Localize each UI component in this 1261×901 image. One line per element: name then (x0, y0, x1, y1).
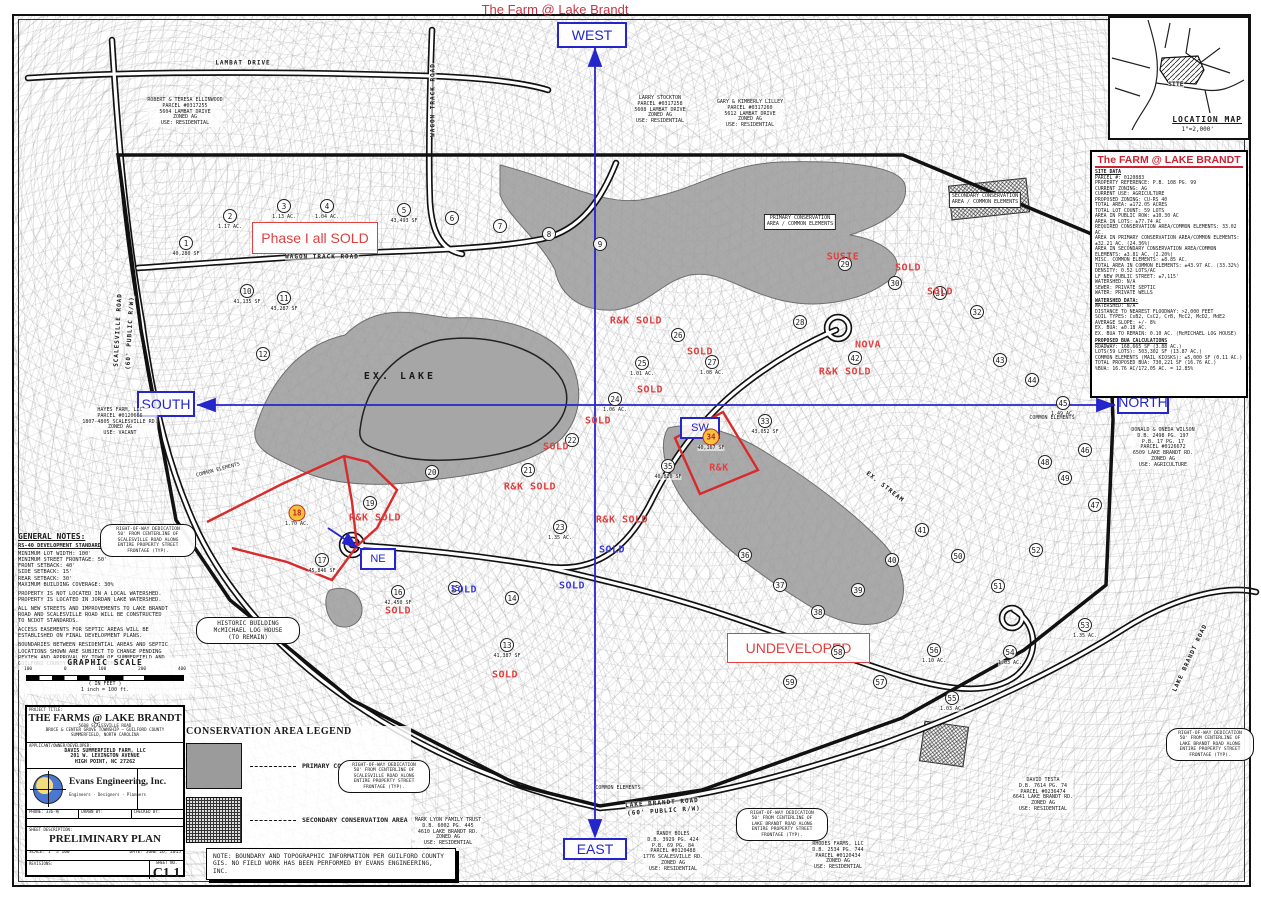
legend-title: CONSERVATION AREA LEGEND (186, 726, 411, 737)
plan-sheet: The Farm @ Lake Brandt WEST EAST SOUTH N… (0, 0, 1261, 901)
general-notes-subheading: RS-40 DEVELOPMENT STANDARDS: (18, 543, 170, 549)
graphic-scale-title: GRAPHIC SCALE (20, 658, 190, 667)
project-address-line: SUMMERFIELD, NORTH CAROLINA (27, 733, 183, 738)
compass-west-button[interactable]: WEST (557, 22, 627, 48)
page-title: The Farm @ Lake Brandt (482, 2, 629, 17)
graphic-scale: GRAPHIC SCALE 1000100200400 ( IN FEET ) … (20, 658, 190, 694)
graphic-scale-ticks: 1000100200400 (20, 667, 190, 672)
general-notes-heading: GENERAL NOTES: (18, 534, 170, 540)
compass-east-button[interactable]: EAST (563, 838, 627, 860)
general-note-paragraph: ACCESS EASEMENTS FOR SEPTIC AREAS WILL B… (18, 627, 170, 639)
location-map-scale: 1"=2,000' (1181, 126, 1214, 133)
legend-primary-label: PRIMARY CONSERVATION AREA (302, 762, 400, 770)
legend-item-primary: PRIMARY CONSERVATION AREA (186, 743, 411, 789)
site-data-lines: SITE DATAPARCEL #: 0120883PROPERTY REFER… (1095, 170, 1243, 372)
sheet-scale: SCALE: 1" = 100' (27, 851, 72, 860)
applicant-line: HIGH POINT, NC 27262 (27, 760, 183, 766)
sheet-date: DATE: JUNE 26, 2015 (130, 851, 183, 860)
site-data-line: AREA IN SECONDARY CONSERVATION AREA/COMM… (1095, 247, 1243, 258)
survey-note-box: NOTE: BOUNDARY AND TOPOGRAPHIC INFORMATI… (206, 848, 456, 880)
site-data-line: AREA IN PRIMARY CONSERVATION AREA/COMMON… (1095, 236, 1243, 247)
compass-sw-button[interactable]: SW (680, 417, 720, 439)
graphic-scale-tick: 400 (178, 667, 186, 672)
sheet-number-cell: SHEET NO. C1.1 (149, 861, 183, 879)
general-notes-paragraphs: PROPERTY IS NOT LOCATED IN A LOCAL WATER… (18, 591, 170, 667)
site-data-line: SOIL TYPES: CsB2, CsC2, CrB, McC2, McD2,… (1095, 315, 1243, 321)
applicant-lines: DAVIS SUMMERFIELD FARM, LLC201 W. LEXING… (27, 749, 183, 766)
title-block-bottom-row: REVISIONS: SHEET NO. C1.1 (27, 861, 183, 879)
general-note-standard: MAXIMUM BUILDING COVERAGE: 30% (18, 582, 170, 588)
graphic-scale-tick: 200 (138, 667, 146, 672)
info-cell-checked: CHECKED BY: (132, 810, 183, 818)
roads (28, 30, 1256, 808)
title-block-scale-date-row: SCALE: 1" = 100' DATE: JUNE 26, 2015 (27, 851, 183, 861)
secondary-conservation-swatch (186, 797, 242, 843)
general-notes-standards: MINIMUM LOT WIDTH: 100'MINIMUM STREET FR… (18, 551, 170, 588)
legend-secondary-label: SECONDARY CONSERVATION AREA (302, 816, 408, 824)
site-data-line: REQUIRED CONSERVATION AREA/COMMON ELEMEN… (1095, 225, 1243, 236)
title-block-project-row: PROJECT TITLE: THE FARMS @ LAKE BRANDT 5… (27, 707, 183, 743)
conservation-legend: CONSERVATION AREA LEGEND PRIMARY CONSERV… (186, 726, 411, 851)
project-address: 5608 SCALESVILLE ROADBRUCE & CENTER GROV… (27, 724, 183, 738)
project-title: THE FARMS @ LAKE BRANDT (27, 713, 183, 724)
site-data-block: The FARM @ LAKE BRANDT SITE DATAPARCEL #… (1090, 150, 1248, 398)
lake-label: EX. LAKE (364, 371, 436, 382)
phase1-sold-badge[interactable]: Phase I all SOLD (252, 222, 378, 254)
graphic-scale-tick: 0 (64, 667, 67, 672)
firm-row-side-cell (137, 769, 183, 809)
legend-leader-line (250, 766, 296, 767)
location-map-title: LOCATION MAP (1172, 115, 1242, 124)
site-data-line: WATER: PRIVATE WELLS (1095, 291, 1243, 297)
sheet-number: C1.1 (150, 866, 183, 879)
evans-engineering-logo (33, 774, 63, 804)
location-map: SITE LOCATION MAP 1"=2,000' (1108, 16, 1250, 140)
general-note-paragraph: ALL NEW STREETS AND IMPROVEMENTS TO LAKE… (18, 606, 170, 624)
compass-ne-button[interactable]: NE (360, 548, 396, 570)
site-data-line: %BUA: 16.76 AC/172.05 AC. = 12.85% (1095, 367, 1243, 373)
general-note-paragraph: PROPERTY IS NOT LOCATED IN A LOCAL WATER… (18, 591, 170, 603)
title-block-info-row: PHONE: 336-布 DRAWN BY: CHECKED BY: (27, 810, 183, 819)
site-data-line: EX. BUA TO REMAIN: 0.10 AC. (McMICHAEL L… (1095, 332, 1243, 338)
graphic-scale-tick: 100 (24, 667, 32, 672)
info-cell-drawn: DRAWN BY: (79, 810, 131, 818)
sheet-description: PRELIMINARY PLAN (27, 833, 183, 845)
graphic-scale-tick: 100 (98, 667, 106, 672)
graphic-scale-ratio: 1 inch = 100 ft. (20, 688, 190, 694)
info-cell-phone: PHONE: 336-布 (27, 810, 79, 818)
location-map-site-label: SITE (1168, 80, 1184, 88)
site-data-title: The FARM @ LAKE BRANDT (1095, 154, 1243, 168)
title-block-description-row: SHEET DESCRIPTION: PRELIMINARY PLAN (27, 827, 183, 851)
title-block-firm-row: Evans Engineering, Inc. Engineers · Desi… (27, 769, 183, 810)
compass-south-button[interactable]: SOUTH (137, 391, 195, 417)
title-block-thin-row (27, 819, 183, 827)
title-block: PROJECT TITLE: THE FARMS @ LAKE BRANDT 5… (25, 705, 185, 877)
general-notes: GENERAL NOTES: RS-40 DEVELOPMENT STANDAR… (18, 534, 170, 670)
title-block-applicant-row: APPLICANT/OWNER/DEVELOPER: DAVIS SUMMERF… (27, 743, 183, 769)
primary-conservation-swatch (186, 743, 242, 789)
undeveloped-badge[interactable]: UNDEVELOPED (727, 633, 870, 663)
legend-item-secondary: SECONDARY CONSERVATION AREA (186, 797, 411, 843)
legend-leader-line (250, 820, 296, 821)
firm-tagline: Engineers · Designers · Planners (69, 793, 146, 798)
